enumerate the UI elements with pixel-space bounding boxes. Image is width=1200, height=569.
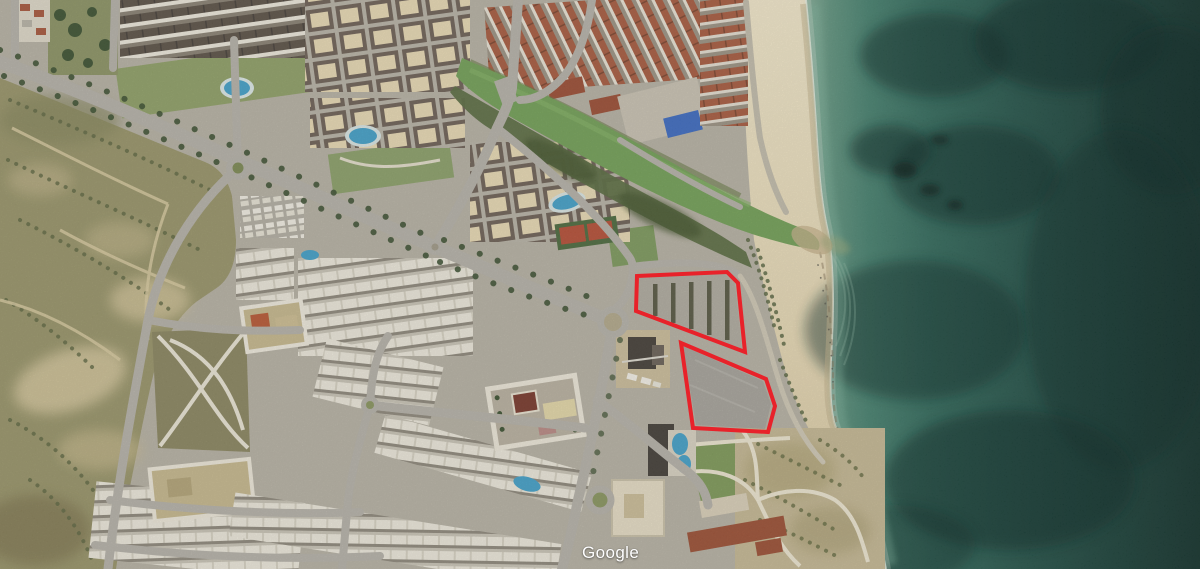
google-watermark[interactable]: Google [582, 543, 639, 563]
photo-grain-light [0, 0, 1200, 569]
satellite-map[interactable]: Google [0, 0, 1200, 569]
